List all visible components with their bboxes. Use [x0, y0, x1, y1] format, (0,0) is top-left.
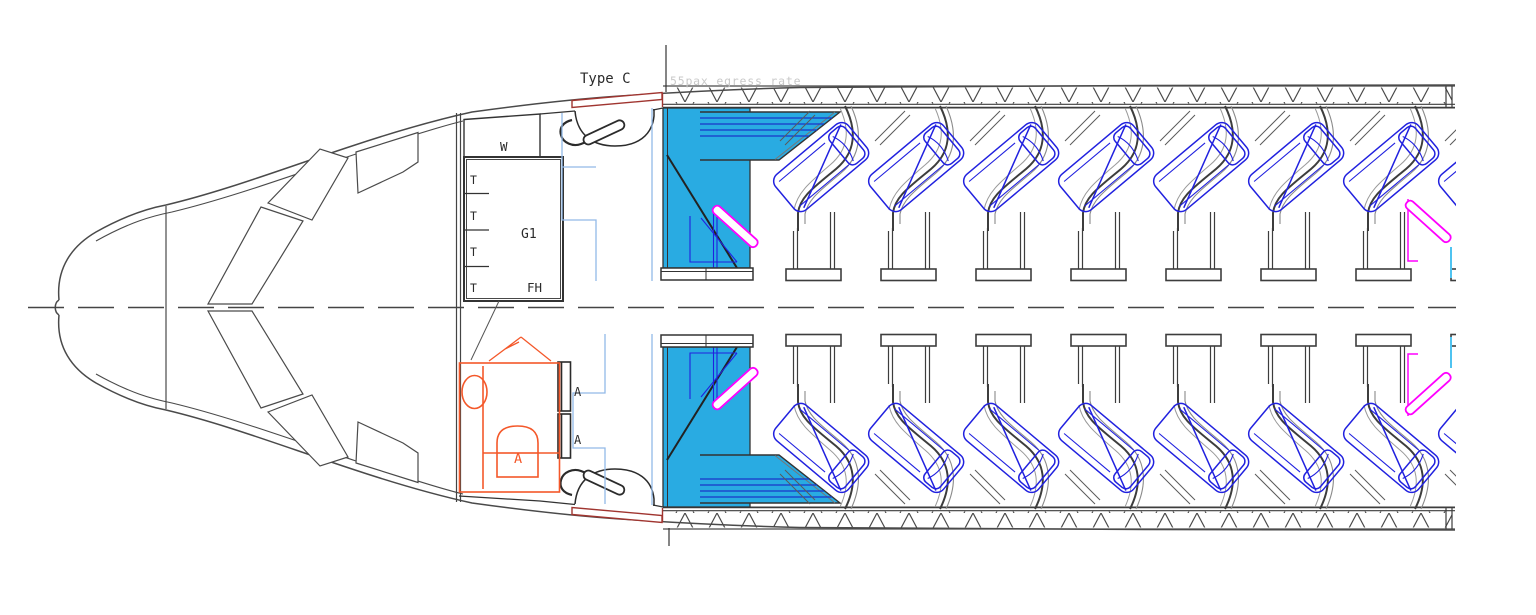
galley-fh-label: FH [527, 280, 542, 295]
folding-door [489, 337, 551, 361]
lav-door-swing-line [471, 301, 499, 360]
galley-g1-label: G1 [521, 227, 537, 242]
seat-row-bottom [661, 335, 1536, 530]
door-red-frame [572, 93, 662, 108]
galley-g1-box [464, 157, 563, 301]
trolley-label-1: T [470, 173, 477, 187]
lopa-svg: Type C 55pax egress rate W T T T T G1 FH… [0, 0, 1536, 615]
attendant-label-2: A [574, 433, 582, 447]
seat-row-top [661, 86, 1536, 281]
wardrobe-label: W [500, 139, 508, 154]
egress-rate-label: 55pax egress rate [670, 74, 801, 88]
lopa-drawing: Type C 55pax egress rate W T T T T G1 FH… [0, 0, 1536, 615]
toilet [497, 426, 538, 453]
door-handle-bar-aft [582, 469, 626, 496]
trolley-label-2: T [470, 209, 477, 223]
lavatory-label: A [514, 451, 522, 467]
lavatory-a [460, 337, 560, 492]
type-c-label: Type C [580, 71, 631, 87]
attendant-label-1: A [574, 385, 582, 399]
door-handle-bar [582, 119, 626, 146]
trolley-label-4: T [470, 281, 477, 295]
door-red-frame-aft [572, 508, 662, 523]
trolley-label-3: T [470, 245, 477, 259]
